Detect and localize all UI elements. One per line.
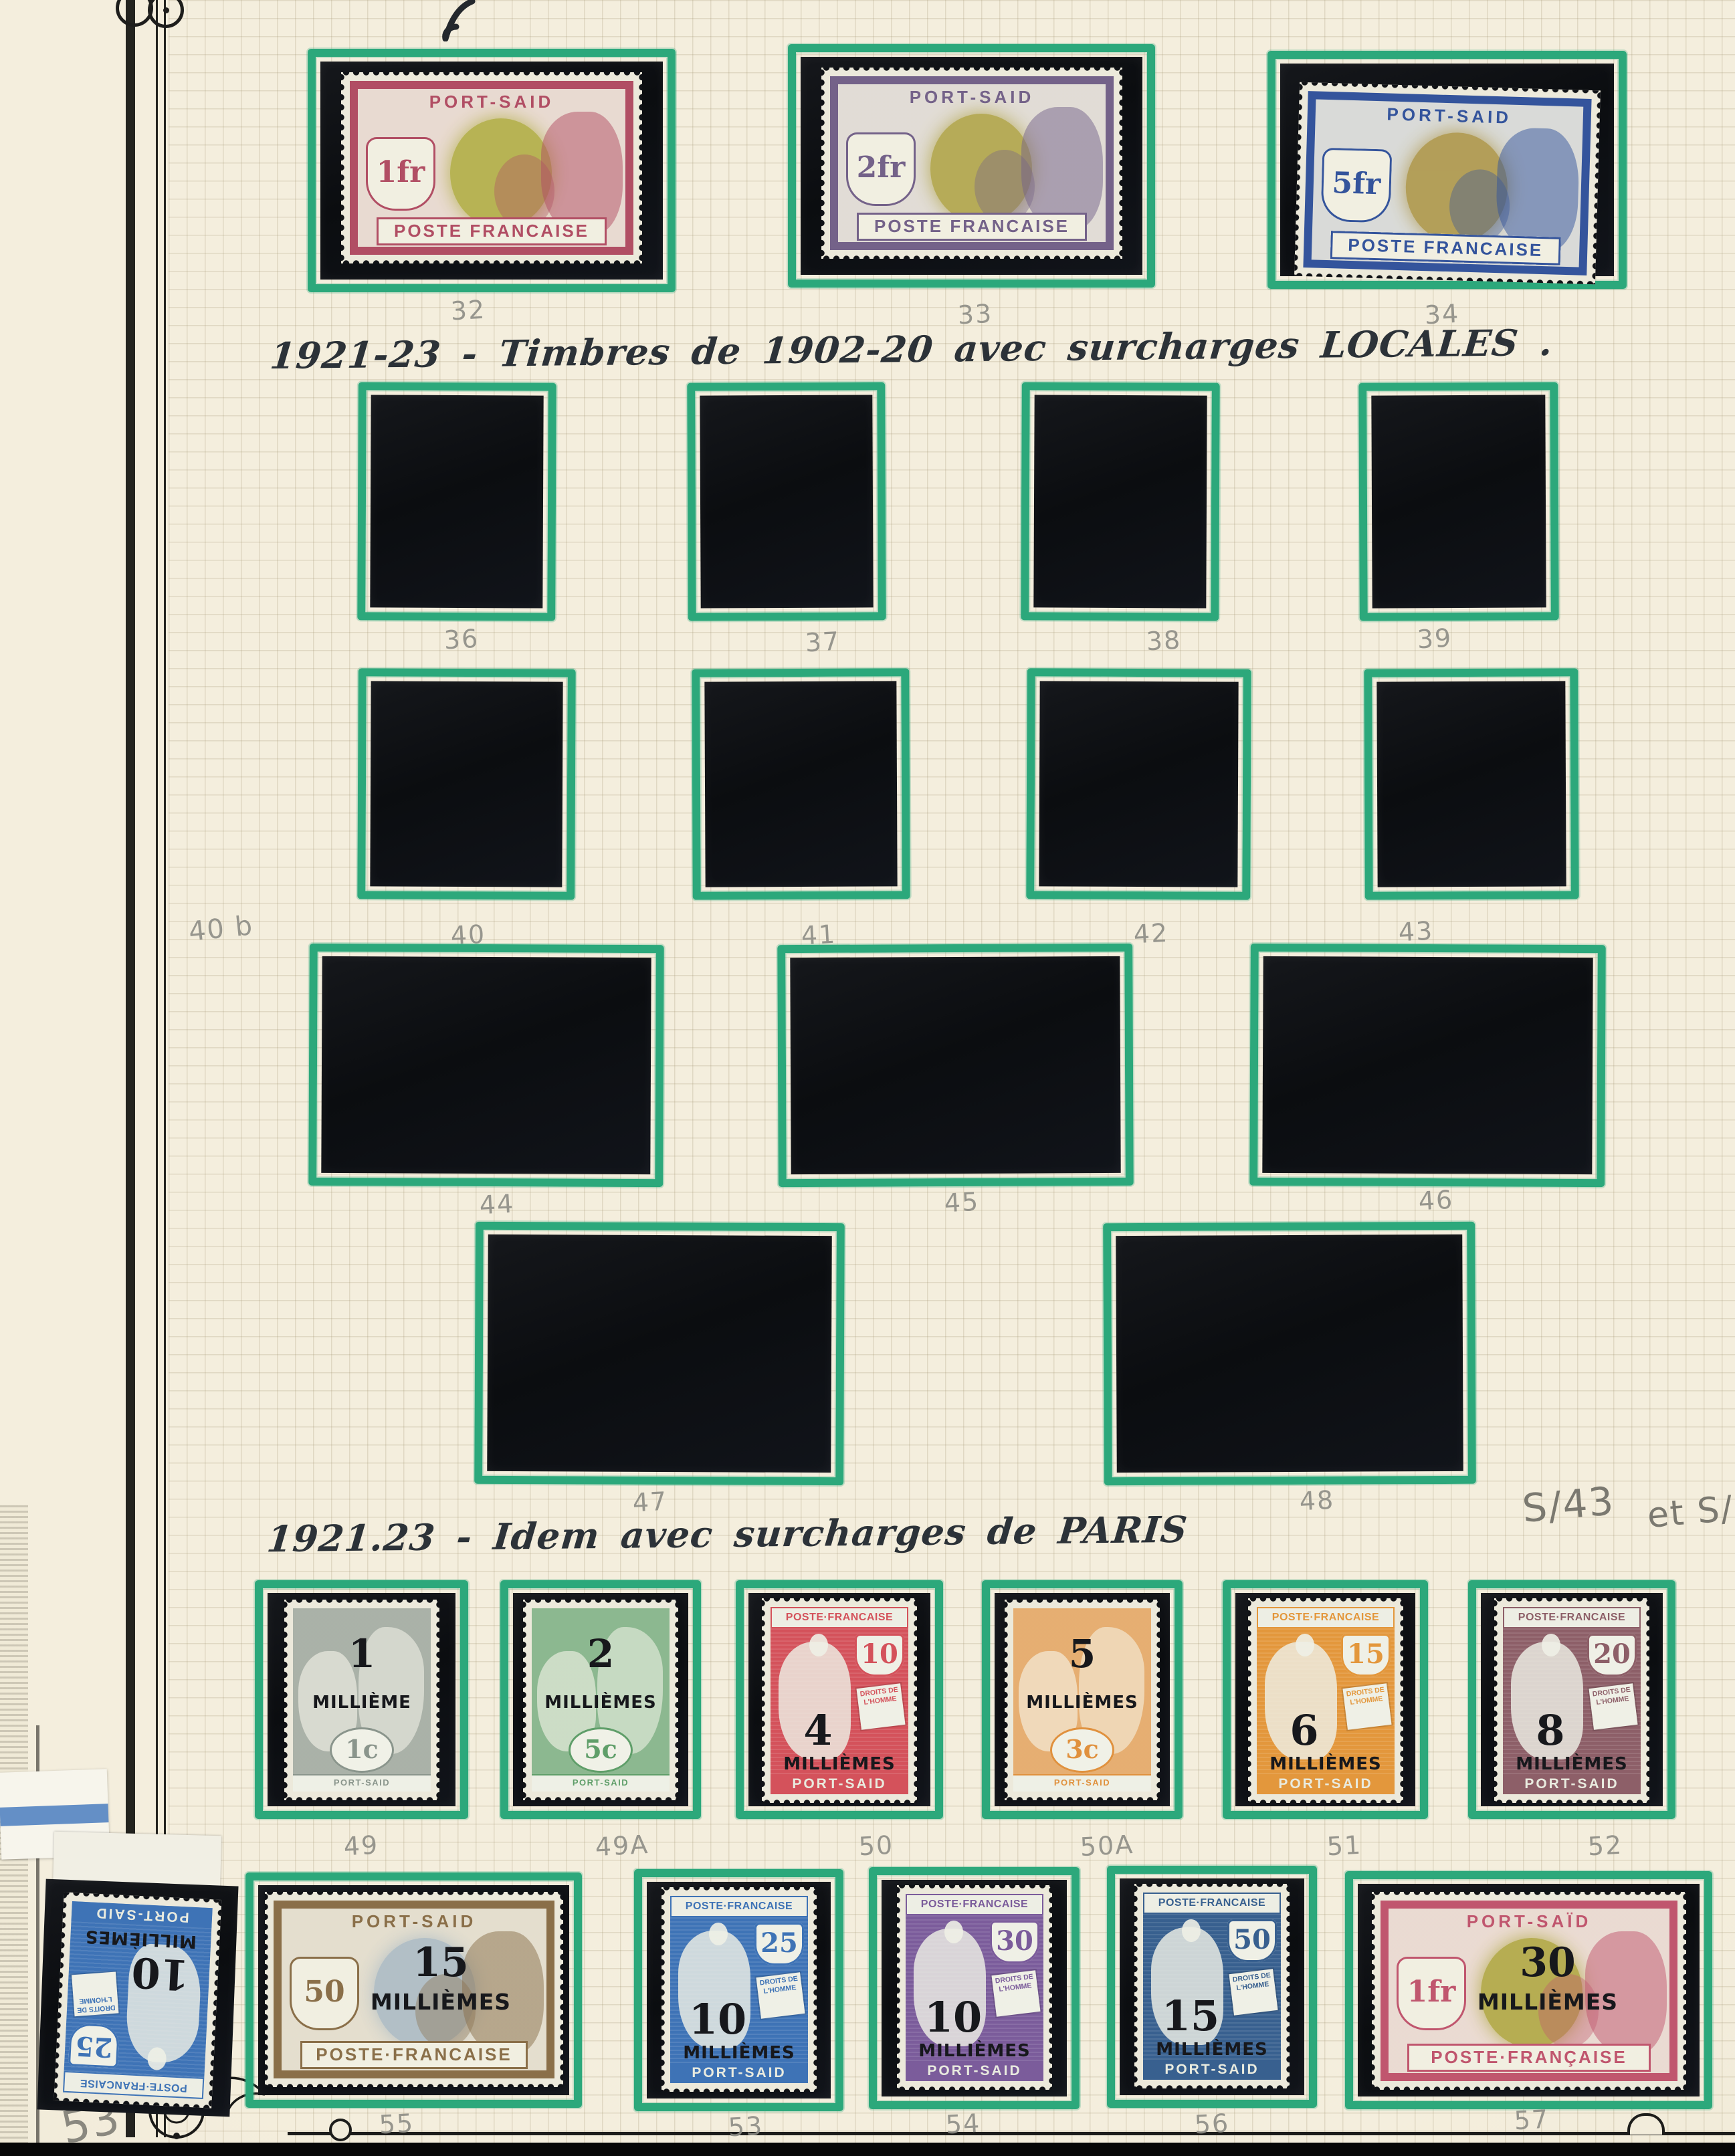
pencil-number-47: 47 [632, 1487, 669, 1518]
pencil-number-44: 44 [479, 1189, 516, 1220]
stamp-mount-45 [790, 956, 1120, 1174]
stamp-mount-49: 1 MILLIÈME 1c PORT-SAID [268, 1593, 455, 1806]
stamp-frame-38 [1021, 382, 1220, 621]
surcharge-word: MILLIÈMES [1143, 2040, 1281, 2060]
pencil-number-55: 55 [379, 2109, 415, 2140]
stamp-mount-50A: 5 MILLIÈMES 3c PORT-SAID [995, 1593, 1170, 1806]
stamp-mount-47 [487, 1234, 832, 1473]
stamp-frame-46 [1249, 944, 1606, 1187]
pencil-number-46: 46 [1418, 1185, 1455, 1216]
stamp-denomination: 5c [569, 1727, 633, 1773]
stamp-mount-36 [370, 395, 543, 608]
stamp-country-label: PORT-SAID [350, 92, 633, 112]
heading-paris: 1921.23 - Idem avec surcharges de PARIS [265, 1508, 1189, 1560]
stamp-frame-57-5: PORT-SAÏD 1fr 30 MILLIÈMES POSTE·FRANÇAI… [1345, 1871, 1712, 2109]
stamp-country-label: PORT-SAID [293, 1774, 431, 1792]
stamp-design: PORT-SAÏD 1fr 30 MILLIÈMES POSTE·FRANÇAI… [1381, 1901, 1677, 2081]
stamp-design: 1 MILLIÈME 1c PORT-SAID [293, 1608, 431, 1792]
pencil-number-56: 56 [1194, 2109, 1231, 2140]
pencil-number-43: 43 [1398, 916, 1435, 948]
surcharge-value: 15 [1143, 1991, 1238, 2040]
stamp-denomination: 1fr [1397, 1957, 1466, 2030]
stamp-design: POSTE·FRANCAISE 15 DROITS DE L'HOMME 6 M… [1257, 1607, 1395, 1794]
stamp-design: 5 MILLIÈMES 3c PORT-SAID [1013, 1608, 1151, 1792]
pencil-number-36: 36 [443, 624, 480, 655]
figure-silhouette [1021, 107, 1103, 230]
stamp-frame-33: PORT-SAID 2fr POSTE FRANCAISE [788, 44, 1155, 288]
album-page: 1921-23 - Timbres de 1902-20 avec surcha… [0, 0, 1735, 2156]
stamp-frame-34: PORT-SAID 5fr POSTE FRANCAISE [1267, 51, 1627, 289]
pencil-number-32: 32 [450, 295, 487, 326]
surcharge-word: MILLIÈMES [532, 1693, 670, 1713]
figure-head [147, 2047, 167, 2070]
stamp-denomination: 20 [1587, 1634, 1637, 1677]
stamp-design: 2 MILLIÈMES 5c PORT-SAID [532, 1608, 670, 1792]
stamp-55: PORT-SAID 50 15 MILLIÈMES POSTE·FRANCAIS… [265, 1892, 563, 2087]
stamp-denomination: 25 [68, 2023, 120, 2068]
stamp-frame-49: 1 MILLIÈME 1c PORT-SAID [255, 1580, 468, 1819]
surcharge-value: 10 [110, 1947, 210, 2000]
pencil-number-50A: 50A [1080, 1830, 1135, 1862]
stamp-mount-44 [321, 956, 651, 1174]
stamp-denomination: 30 [990, 1921, 1039, 1963]
scan-edge [0, 2143, 1735, 2156]
margin-note: 40 b [187, 910, 255, 948]
pencil-number-37: 37 [805, 627, 841, 658]
stamp-header-label: POSTE·FRANCAISE [1143, 1893, 1281, 1914]
stamp-frame-43 [1364, 668, 1579, 899]
stamp-bottom-label: POSTE·FRANCAISE [300, 2041, 528, 2069]
stamp-frame-51: POSTE·FRANCAISE 15 DROITS DE L'HOMME 6 M… [1223, 1580, 1428, 1819]
stamp-34: PORT-SAID 5fr POSTE FRANCAISE [1294, 82, 1601, 284]
stamp-frame-56-4: POSTE·FRANCAISE 50 DROITS DE L'HOMME 15 … [1107, 1866, 1317, 2108]
stamp-denomination: 2fr [846, 132, 916, 206]
pencil-number-50: 50 [858, 1830, 895, 1862]
stamp-mount-55-1: PORT-SAID 50 15 MILLIÈMES POSTE·FRANCAIS… [258, 1885, 569, 2095]
stamp-mount-33: PORT-SAID 2fr POSTE FRANCAISE [801, 57, 1142, 275]
stamp-frame-50: POSTE·FRANCAISE 10 DROITS DE L'HOMME 4 M… [736, 1580, 943, 1819]
stamp-mount-38 [1033, 395, 1207, 608]
stamp-mount-39 [1371, 395, 1546, 608]
stamp-denomination: 50 [290, 1957, 359, 2030]
pencil-number-49: 49 [343, 1830, 380, 1862]
stamp-mount-41 [704, 681, 897, 887]
stamp-denomination: 10 [855, 1634, 904, 1677]
figure-head [1296, 1634, 1314, 1656]
stamp-denomination: 25 [754, 1923, 804, 1965]
stamp-mount-52: POSTE·FRANCAISE 20 DROITS DE L'HOMME 8 M… [1481, 1593, 1663, 1806]
surcharge-word: MILLIÈMES [771, 1754, 908, 1774]
pencil-number-33: 33 [957, 299, 994, 330]
stamp-country-label: PORT-SAID [274, 1911, 554, 1932]
ink-flourish-icon [425, 0, 486, 41]
stamp-mount-53-margin: POSTE·FRANCAISE 25 DROITS DE L'HOMME 10 … [37, 1879, 238, 2117]
stamp-53: POSTE·FRANCAISE 25 DROITS DE L'HOMME 10 … [54, 1892, 221, 2108]
surcharge-value: 2 [532, 1631, 670, 1677]
stamp-frame-39 [1358, 382, 1559, 621]
stamp-frame-47 [474, 1222, 845, 1485]
stamp-header-label: POSTE·FRANCAISE [1257, 1607, 1395, 1628]
stamp-design: POSTE·FRANCAISE 30 DROITS DE L'HOMME 10 … [906, 1894, 1043, 2081]
stamp-mount-56-4: POSTE·FRANCAISE 50 DROITS DE L'HOMME 15 … [1120, 1878, 1304, 2095]
stamp-mount-49A: 2 MILLIÈMES 5c PORT-SAID [513, 1593, 688, 1806]
pencil-number-38: 38 [1146, 625, 1183, 657]
stamp-denomination: 50 [1227, 1919, 1277, 1962]
pencil-number-34: 34 [1424, 299, 1461, 330]
rule-bump-icon [1627, 2113, 1665, 2135]
surcharge-value: 30 [1481, 1939, 1615, 1986]
surcharge-value: 10 [670, 1995, 765, 2044]
stamp-bottom-label: POSTE FRANCAISE [857, 213, 1087, 241]
stamp-mount-48 [1116, 1234, 1463, 1473]
stamp-country-label: PORT-SAÏD [1381, 1911, 1677, 1932]
surcharge-word: MILLIÈMES [670, 2043, 808, 2063]
stamp-frame-48 [1103, 1222, 1476, 1485]
stamp-bottom-label: POSTE FRANCAISE [377, 217, 607, 245]
stamp-denomination: 15 [1341, 1634, 1391, 1677]
stamp-51: POSTE·FRANCAISE 15 DROITS DE L'HOMME 6 M… [1248, 1598, 1403, 1803]
surcharge-value: 15 [374, 1939, 508, 1986]
heading-locales: 1921-23 - Timbres de 1902-20 avec surcha… [268, 321, 1555, 377]
side-note-et: et S/4 [1645, 1487, 1735, 1536]
stamp-frame-52: POSTE·FRANCAISE 20 DROITS DE L'HOMME 8 M… [1468, 1580, 1675, 1819]
stamp-design: PORT-SAID 2fr POSTE FRANCAISE [830, 76, 1114, 250]
stamp-country-label: PORT-SAID [670, 2063, 808, 2083]
pencil-number-52: 52 [1587, 1830, 1624, 1862]
stamp-53: POSTE·FRANCAISE 25 DROITS DE L'HOMME 10 … [661, 1887, 817, 2092]
stamp-header-label: POSTE·FRANCAISE [906, 1894, 1043, 1915]
figure-silhouette [1495, 127, 1580, 252]
stamp-frame-32: PORT-SAID 1fr POSTE FRANCAISE [308, 49, 676, 292]
stamp-mount-53-2: POSTE·FRANCAISE 25 DROITS DE L'HOMME 10 … [647, 1882, 831, 2098]
stamp-57: PORT-SAÏD 1fr 30 MILLIÈMES POSTE·FRANÇAI… [1372, 1892, 1686, 2090]
stamp-country-label: PORT-SAID [830, 87, 1114, 108]
surcharge-word: MILLIÈMES [1013, 1693, 1151, 1713]
stamp-design: POSTE·FRANCAISE 25 DROITS DE L'HOMME 10 … [670, 1896, 808, 2083]
stamp-mount-42 [1039, 681, 1238, 887]
pencil-number-53: 53 [728, 2111, 764, 2143]
stamp-design: POSTE·FRANCAISE 25 DROITS DE L'HOMME 10 … [63, 1901, 213, 2099]
stamp-denomination: 1c [330, 1727, 394, 1773]
stamp-country-label: PORT-SAID [1013, 1774, 1151, 1792]
blue-band [0, 1804, 108, 1826]
surcharge-word: MILLIÈMES [1458, 1989, 1637, 2015]
stamp-country-label: PORT-SAID [1257, 1774, 1395, 1794]
stamp-frame-44 [308, 944, 664, 1187]
surcharge-word: MILLIÈMES [1257, 1754, 1395, 1774]
stamp-denomination: 3c [1050, 1727, 1114, 1773]
stamp-header-label: POSTE·FRANCAISE [771, 1607, 908, 1628]
stamp-frame-41 [692, 668, 910, 899]
stamp-design: POSTE·FRANCAISE 50 DROITS DE L'HOMME 15 … [1143, 1893, 1281, 2080]
pencil-number-42: 42 [1133, 918, 1170, 950]
stamp-design: POSTE·FRANCAISE 10 DROITS DE L'HOMME 4 M… [771, 1607, 908, 1794]
figure-head [1542, 1634, 1560, 1656]
figure-head [944, 1921, 963, 1943]
pencil-number-45: 45 [944, 1187, 981, 1218]
stamp-frame-36 [357, 382, 556, 621]
surcharge-value: 10 [906, 1993, 1001, 2042]
stamp-33: PORT-SAID 2fr POSTE FRANCAISE [821, 68, 1122, 259]
pencil-number-39: 39 [1417, 623, 1453, 655]
stamp-frame-53-2: POSTE·FRANCAISE 25 DROITS DE L'HOMME 10 … [634, 1869, 843, 2111]
stamp-56: POSTE·FRANCAISE 50 DROITS DE L'HOMME 15 … [1134, 1884, 1290, 2088]
stamp-country-label: PORT-SAID [72, 1901, 213, 1928]
stamp-frame-45 [777, 944, 1134, 1187]
rule-knob-icon [329, 2119, 352, 2141]
surcharge-value: 5 [1013, 1631, 1151, 1677]
stamp-design: PORT-SAID 5fr POSTE FRANCAISE [1303, 91, 1591, 276]
stamp-design: PORT-SAID 50 15 MILLIÈMES POSTE·FRANCAIS… [274, 1901, 554, 2078]
surcharge-word: MILLIÈMES [906, 2041, 1043, 2061]
surcharge-value: 4 [771, 1706, 865, 1755]
stamp-denomination: 1fr [366, 137, 435, 211]
surcharge-value: 1 [293, 1631, 431, 1677]
stamp-mount-43 [1376, 681, 1566, 887]
border-line-thin-a [156, 0, 158, 2137]
stamp-country-label: PORT-SAID [771, 1774, 908, 1794]
stamp-mount-40 [370, 681, 563, 887]
border-line-thick [126, 0, 135, 2137]
stamp-52: POSTE·FRANCAISE 20 DROITS DE L'HOMME 8 M… [1494, 1598, 1649, 1803]
stamp-49A: 2 MILLIÈMES 5c PORT-SAID [523, 1600, 678, 1800]
stamp-frame-40 [357, 668, 576, 899]
stamp-32: PORT-SAID 1fr POSTE FRANCAISE [341, 72, 642, 263]
stamp-mount-32: PORT-SAID 1fr POSTE FRANCAISE [320, 62, 663, 280]
border-line-thin-b [164, 0, 166, 2137]
stamp-header-label: POSTE·FRANCAISE [1503, 1607, 1641, 1628]
figure-silhouette [541, 112, 623, 235]
stamp-denomination: 5fr [1320, 148, 1392, 223]
surcharge-word: MILLIÈMES [70, 1925, 211, 1952]
pencil-number-49A: 49A [595, 1830, 650, 1862]
surcharge-word: MILLIÈMES [351, 1989, 530, 2015]
surcharge-word: MILLIÈMES [1503, 1754, 1641, 1774]
stamp-bottom-label: POSTE·FRANÇAISE [1407, 2044, 1651, 2072]
surcharge-word: MILLIÈME [293, 1693, 431, 1713]
stamp-design: PORT-SAID 1fr POSTE FRANCAISE [350, 81, 633, 255]
stamp-mount-46 [1262, 956, 1593, 1174]
stamp-mount-50: POSTE·FRANCAISE 10 DROITS DE L'HOMME 4 M… [748, 1593, 930, 1806]
stamp-country-label: PORT-SAID [1503, 1774, 1641, 1794]
stamp-frame-37 [687, 382, 886, 621]
stamp-mount-57-5: PORT-SAÏD 1fr 30 MILLIÈMES POSTE·FRANÇAI… [1358, 1884, 1700, 2096]
stamp-50: POSTE·FRANCAISE 10 DROITS DE L'HOMME 4 M… [762, 1598, 917, 1803]
figure-head [1182, 1919, 1201, 1942]
stamp-country-label: PORT-SAID [906, 2061, 1043, 2081]
pin-ornament-icon [148, 0, 184, 28]
stamp-header-label: POSTE·FRANCAISE [670, 1896, 808, 1917]
stamp-50A: 5 MILLIÈMES 3c PORT-SAID [1005, 1600, 1160, 1800]
stamp-frame-42 [1026, 668, 1251, 899]
stamp-design: POSTE·FRANCAISE 20 DROITS DE L'HOMME 8 M… [1503, 1607, 1641, 1794]
stamp-49: 1 MILLIÈME 1c PORT-SAID [284, 1600, 439, 1800]
stamp-mount-51: POSTE·FRANCAISE 15 DROITS DE L'HOMME 6 M… [1235, 1593, 1415, 1806]
stamp-country-label: PORT-SAID [1143, 2060, 1281, 2080]
pencil-number-54: 54 [945, 2109, 982, 2140]
stamp-mount-37 [700, 395, 873, 608]
stamp-frame-50A: 5 MILLIÈMES 3c PORT-SAID [982, 1580, 1183, 1819]
stamp-mount-54-3: POSTE·FRANCAISE 30 DROITS DE L'HOMME 10 … [882, 1880, 1067, 2096]
pencil-number-57: 57 [1514, 2105, 1550, 2136]
stamp-country-label: PORT-SAID [532, 1774, 670, 1792]
surcharge-value: 8 [1503, 1706, 1598, 1755]
figure-head [709, 1923, 728, 1945]
figure-head [809, 1634, 828, 1656]
surcharge-value: 6 [1257, 1706, 1352, 1755]
stamp-frame-49A: 2 MILLIÈMES 5c PORT-SAID [500, 1580, 701, 1819]
stamp-frame-54-3: POSTE·FRANCAISE 30 DROITS DE L'HOMME 10 … [869, 1867, 1080, 2109]
stamp-54: POSTE·FRANCAISE 30 DROITS DE L'HOMME 10 … [897, 1885, 1052, 2090]
side-note-s43: S/43 [1520, 1478, 1617, 1531]
pencil-number-51: 51 [1326, 1830, 1363, 1862]
stamp-frame-55-1: PORT-SAID 50 15 MILLIÈMES POSTE·FRANCAIS… [245, 1872, 582, 2108]
stamp-header-label: POSTE·FRANCAISE [63, 2071, 204, 2099]
pencil-number-48: 48 [1299, 1485, 1336, 1517]
stamp-mount-34: PORT-SAID 5fr POSTE FRANCAISE [1280, 64, 1614, 276]
